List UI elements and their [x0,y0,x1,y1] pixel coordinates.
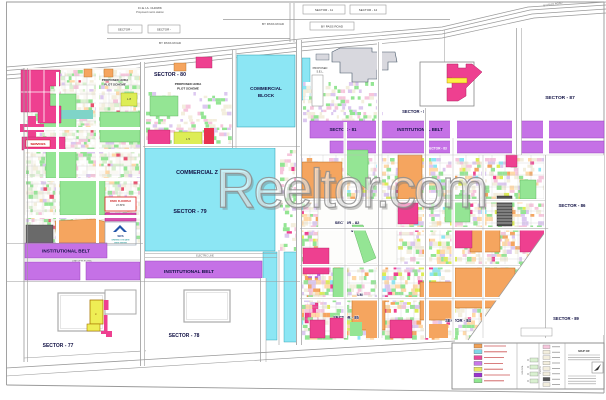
svg-text:SECTOR - 81: SECTOR - 81 [329,127,357,132]
svg-text:S.E.L.: S.E.L. [316,70,323,74]
svg-text:PROPOSED HUDA: PROPOSED HUDA [175,82,202,86]
svg-text:PROPOSED HUDA: PROPOSED HUDA [102,78,129,82]
svg-text:GREENO ESTATE: GREENO ESTATE [111,239,130,242]
svg-text:SECTOR - 86: SECTOR - 86 [558,203,586,208]
svg-text:SECTOR -: SECTOR - [157,28,171,32]
svg-text:BY PASS ROAD: BY PASS ROAD [262,22,285,26]
svg-text:PLOTS: PLOTS [540,366,542,374]
svg-text:Proposed metro station: Proposed metro station [136,10,164,14]
svg-text:Reeltor.com: Reeltor.com [216,157,488,219]
svg-text:COMMERCIAL Z: COMMERCIAL Z [176,170,219,176]
svg-text:INSTITUTIONAL BELT: INSTITUTIONAL BELT [397,127,443,132]
svg-text:INSTITUTIONAL BELT: INSTITUTIONAL BELT [164,269,214,275]
svg-text:SECTOR - 89: SECTOR - 89 [553,316,579,321]
svg-text:SECTOR - 78: SECTOR - 78 [169,333,200,339]
svg-text:BY PASS ROAD: BY PASS ROAD [321,25,344,29]
svg-text:PARK FLOORS-II: PARK FLOORS-II [110,199,131,203]
svg-text:SECTOR -: SECTOR - [118,28,132,32]
svg-text:PROPOSED: PROPOSED [313,66,328,70]
svg-text:LM: LM [357,293,362,297]
svg-text:SECTOR - 87: SECTOR - 87 [545,95,575,101]
svg-text:PLOT SCHEME: PLOT SCHEME [177,87,199,91]
svg-text:SECTOR - 79: SECTOR - 79 [173,209,206,215]
svg-text:INSTITUTIONAL BELT: INSTITUTIONAL BELT [42,249,90,254]
svg-text:SECTOR - 11: SECTOR - 11 [315,8,334,12]
svg-text:SECTOR - 83: SECTOR - 83 [427,147,447,151]
svg-text:SRS: SRS [117,234,123,238]
svg-text:SECTOR - 80: SECTOR - 80 [154,72,186,78]
svg-text:SECTOR - 84: SECTOR - 84 [445,318,471,323]
svg-text:L 5: L 5 [186,137,190,141]
svg-text:COMMERCIAL: COMMERCIAL [250,86,282,91]
svg-text:PLOT SCHEME: PLOT SCHEME [104,83,126,87]
svg-text:L 8: L 8 [127,97,131,101]
svg-text:2/3 BHK: 2/3 BHK [116,204,125,207]
svg-text:SECTOR - 12: SECTOR - 12 [359,8,378,12]
svg-text:F.I.E.I.A. CHOWK: F.I.E.I.A. CHOWK [138,6,162,10]
svg-text:SECTOR - 77: SECTOR - 77 [43,343,74,349]
svg-text:BY PASS ROAD: BY PASS ROAD [159,41,182,45]
svg-text:SERVICES: SERVICES [30,142,45,146]
svg-text:MAP OF: MAP OF [578,349,590,353]
svg-text:ELECTRIC LINE: ELECTRIC LINE [196,255,214,258]
svg-text:SCHOOL: SCHOOL [522,365,524,375]
svg-text:BLOCK: BLOCK [258,93,275,98]
